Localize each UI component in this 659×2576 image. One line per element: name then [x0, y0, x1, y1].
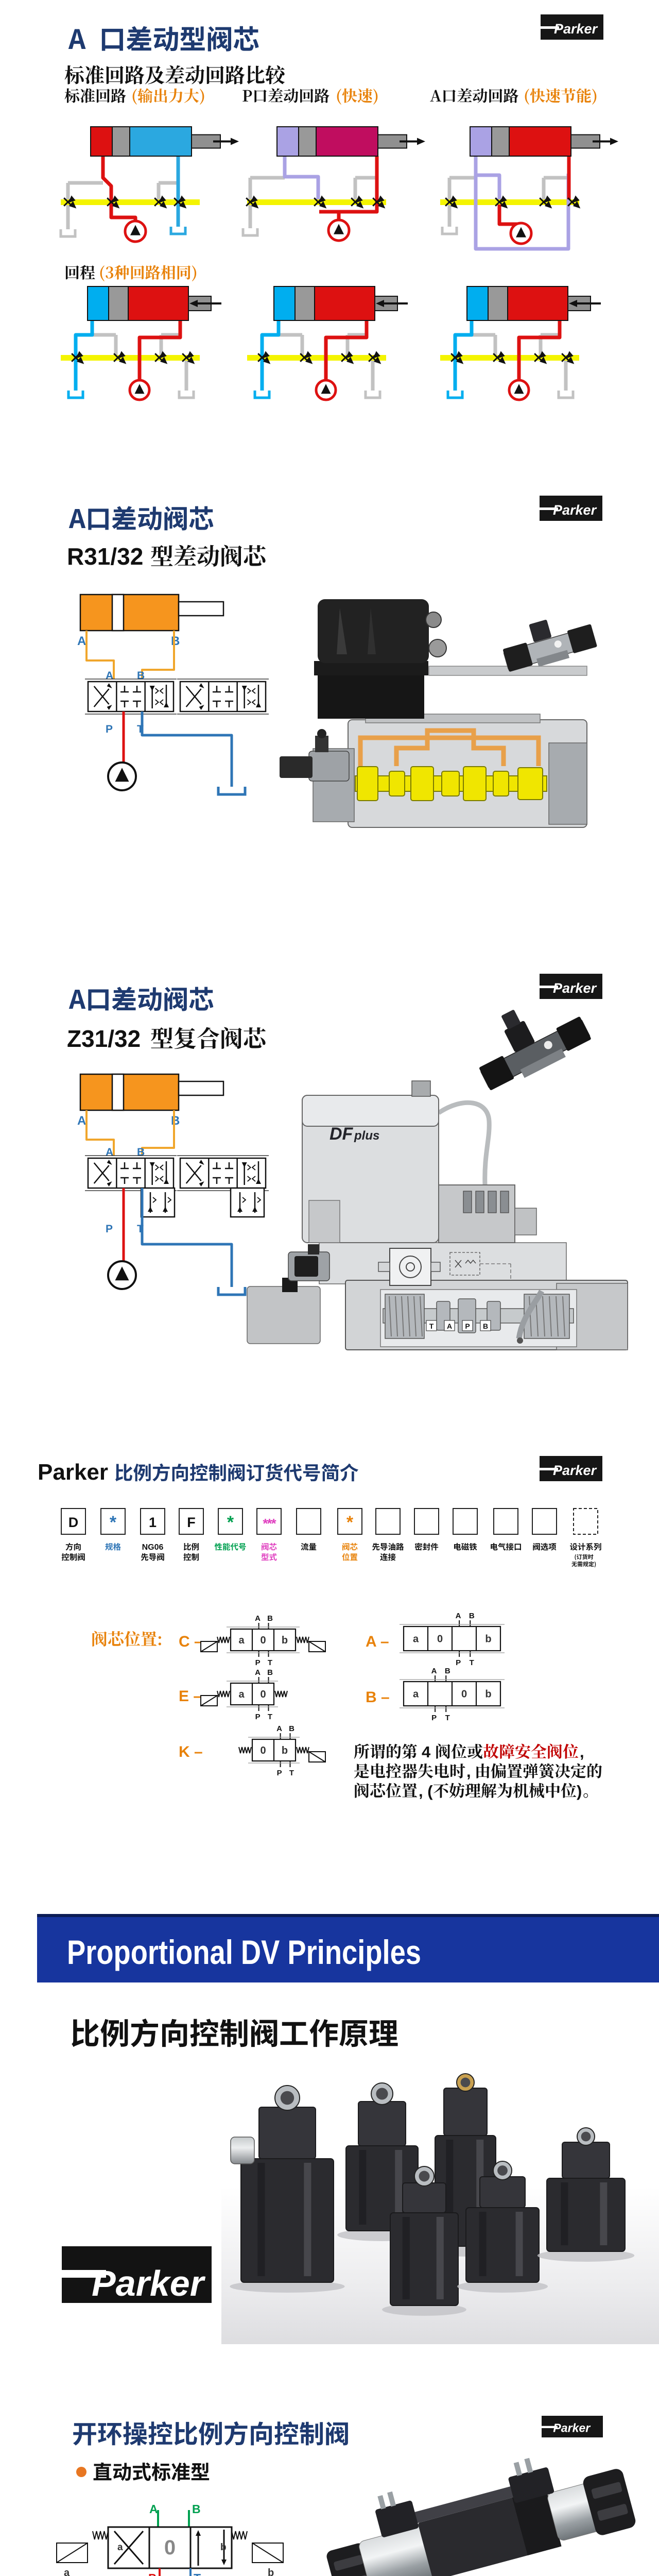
svg-text:A: A: [255, 1668, 261, 1677]
svg-text:B: B: [192, 2502, 201, 2516]
svg-text:P: P: [148, 2571, 156, 2576]
svg-text:NG06: NG06: [142, 1543, 164, 1552]
svg-text:B: B: [267, 1614, 273, 1623]
svg-text:A –: A –: [366, 1633, 389, 1650]
svg-text:): ): [577, 1782, 582, 1800]
svg-text:Proportional DV Principles: Proportional DV Principles: [67, 1933, 421, 1971]
svg-text:1: 1: [149, 1515, 157, 1530]
svg-text:Parker: Parker: [553, 502, 597, 518]
svg-text:a: a: [64, 2567, 70, 2576]
svg-text:B: B: [445, 1667, 450, 1675]
svg-text:B: B: [483, 1322, 488, 1330]
svg-text:***: ***: [263, 1516, 276, 1531]
svg-text:0: 0: [260, 1689, 266, 1700]
svg-text:D: D: [68, 1515, 79, 1530]
svg-text:P: P: [106, 723, 113, 735]
svg-text:A: A: [106, 1146, 113, 1158]
svg-text:b: b: [485, 1689, 491, 1700]
svg-text:A: A: [456, 1612, 461, 1620]
svg-text:A: A: [255, 1614, 261, 1623]
svg-text:C –: C –: [179, 1633, 203, 1650]
svg-text:P: P: [456, 1658, 461, 1667]
svg-text:P: P: [106, 1223, 113, 1235]
svg-text:K –: K –: [179, 1743, 203, 1760]
svg-text:0: 0: [461, 1689, 467, 1700]
svg-text:A: A: [77, 1114, 86, 1128]
svg-text:b: b: [220, 2542, 227, 2553]
svg-text:4: 4: [422, 1743, 431, 1761]
svg-text:E –: E –: [179, 1688, 202, 1705]
svg-text:R31/32: R31/32: [67, 543, 143, 570]
svg-text:a: a: [413, 1689, 419, 1700]
svg-text:Parker: Parker: [553, 2421, 591, 2435]
svg-text:b: b: [268, 2567, 274, 2576]
svg-text:a: a: [238, 1689, 245, 1700]
svg-text:*: *: [227, 1513, 234, 1532]
svg-text:T: T: [429, 1322, 434, 1330]
svg-text:P: P: [431, 1714, 437, 1722]
svg-text:A: A: [447, 1322, 452, 1330]
svg-text:B: B: [267, 1668, 273, 1677]
svg-text:*: *: [346, 1513, 354, 1532]
svg-text:B: B: [469, 1612, 475, 1620]
svg-text:B: B: [137, 1146, 145, 1158]
svg-text:Parker: Parker: [38, 1460, 108, 1485]
svg-text:0: 0: [164, 2536, 176, 2559]
svg-text:P: P: [277, 1769, 282, 1777]
svg-text:A: A: [149, 2502, 158, 2516]
svg-text:T: T: [268, 1713, 272, 1721]
svg-text:T: T: [268, 1658, 272, 1667]
svg-text:T: T: [194, 2571, 201, 2576]
svg-text:a: a: [413, 1634, 419, 1645]
svg-text:Z31/32: Z31/32: [67, 1025, 141, 1052]
svg-text:B: B: [171, 1114, 180, 1128]
svg-text:B: B: [289, 1724, 294, 1733]
svg-text:B: B: [137, 670, 145, 682]
svg-text:b: b: [282, 1635, 288, 1646]
svg-text:A: A: [431, 1667, 437, 1675]
svg-text:Parker: Parker: [554, 21, 598, 37]
svg-text:B: B: [171, 634, 180, 648]
svg-text:T: T: [470, 1658, 474, 1667]
svg-text:Parker: Parker: [553, 980, 597, 996]
svg-text:B –: B –: [366, 1689, 390, 1706]
svg-text:P: P: [255, 1658, 261, 1667]
svg-text:P: P: [465, 1322, 470, 1330]
svg-text:*: *: [110, 1513, 117, 1532]
svg-text:b: b: [485, 1634, 491, 1645]
svg-text:a: a: [238, 1635, 245, 1646]
svg-text:a: a: [117, 2542, 123, 2553]
svg-text:A: A: [77, 634, 86, 648]
svg-text:P: P: [255, 1713, 261, 1721]
svg-text:A: A: [106, 670, 113, 682]
svg-text:F: F: [187, 1515, 196, 1530]
svg-text:b: b: [282, 1745, 288, 1756]
svg-text:DF: DF: [329, 1124, 354, 1144]
svg-text:0: 0: [260, 1635, 266, 1646]
svg-text:plus: plus: [354, 1129, 379, 1143]
svg-text:,: ,: [466, 1762, 471, 1781]
svg-text:T: T: [445, 1714, 450, 1722]
svg-text:, (: , (: [419, 1782, 433, 1800]
svg-text:,: ,: [580, 1743, 584, 1761]
svg-text:0: 0: [437, 1634, 443, 1645]
svg-text:0: 0: [260, 1745, 266, 1756]
svg-text:A: A: [276, 1724, 282, 1733]
svg-text:Parker: Parker: [92, 2263, 206, 2303]
svg-text:T: T: [289, 1769, 294, 1777]
svg-text:Parker: Parker: [553, 1463, 597, 1478]
